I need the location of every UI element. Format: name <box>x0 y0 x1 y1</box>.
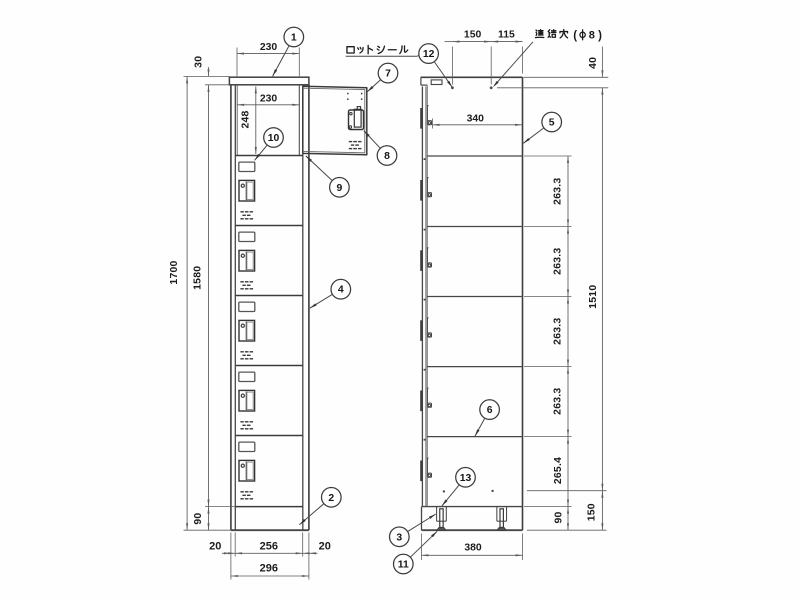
svg-text:4: 4 <box>338 285 344 296</box>
svg-text:265.4: 265.4 <box>553 457 564 484</box>
svg-text:380: 380 <box>464 543 482 554</box>
svg-text:115: 115 <box>498 30 515 41</box>
svg-text:263.3: 263.3 <box>553 388 564 415</box>
svg-text:8: 8 <box>589 30 595 42</box>
svg-text:2: 2 <box>328 493 334 504</box>
svg-text:3: 3 <box>396 532 402 543</box>
svg-text:248: 248 <box>241 110 252 128</box>
svg-text:10: 10 <box>268 133 280 144</box>
svg-text:1510: 1510 <box>588 285 599 309</box>
svg-text:150: 150 <box>587 503 598 521</box>
svg-text:5: 5 <box>549 118 555 129</box>
svg-text:13: 13 <box>460 473 472 484</box>
svg-text:6: 6 <box>487 405 493 416</box>
svg-text:230: 230 <box>260 93 278 104</box>
svg-text:1: 1 <box>291 33 297 44</box>
svg-text:12: 12 <box>423 49 435 60</box>
svg-text:30: 30 <box>194 56 205 68</box>
svg-text:40: 40 <box>588 57 599 69</box>
svg-text:(: ( <box>573 30 577 42</box>
svg-text:1700: 1700 <box>169 260 180 284</box>
svg-text:9: 9 <box>337 183 343 194</box>
svg-text:340: 340 <box>467 114 485 125</box>
svg-text:150: 150 <box>464 30 482 41</box>
svg-text:20: 20 <box>209 540 221 552</box>
svg-text:263.3: 263.3 <box>553 318 564 345</box>
svg-text:256: 256 <box>260 540 278 552</box>
svg-text:): ) <box>598 30 602 42</box>
svg-text:20: 20 <box>319 540 331 552</box>
svg-text:90: 90 <box>554 511 565 523</box>
svg-text:230: 230 <box>260 42 278 53</box>
svg-text:11: 11 <box>398 560 409 571</box>
svg-text:8: 8 <box>384 151 390 162</box>
svg-text:90: 90 <box>193 513 204 525</box>
svg-text:263.3: 263.3 <box>553 178 564 205</box>
svg-text:1580: 1580 <box>193 266 204 290</box>
svg-text:296: 296 <box>260 562 278 574</box>
svg-text:263.3: 263.3 <box>553 248 564 275</box>
svg-text:7: 7 <box>385 69 391 80</box>
